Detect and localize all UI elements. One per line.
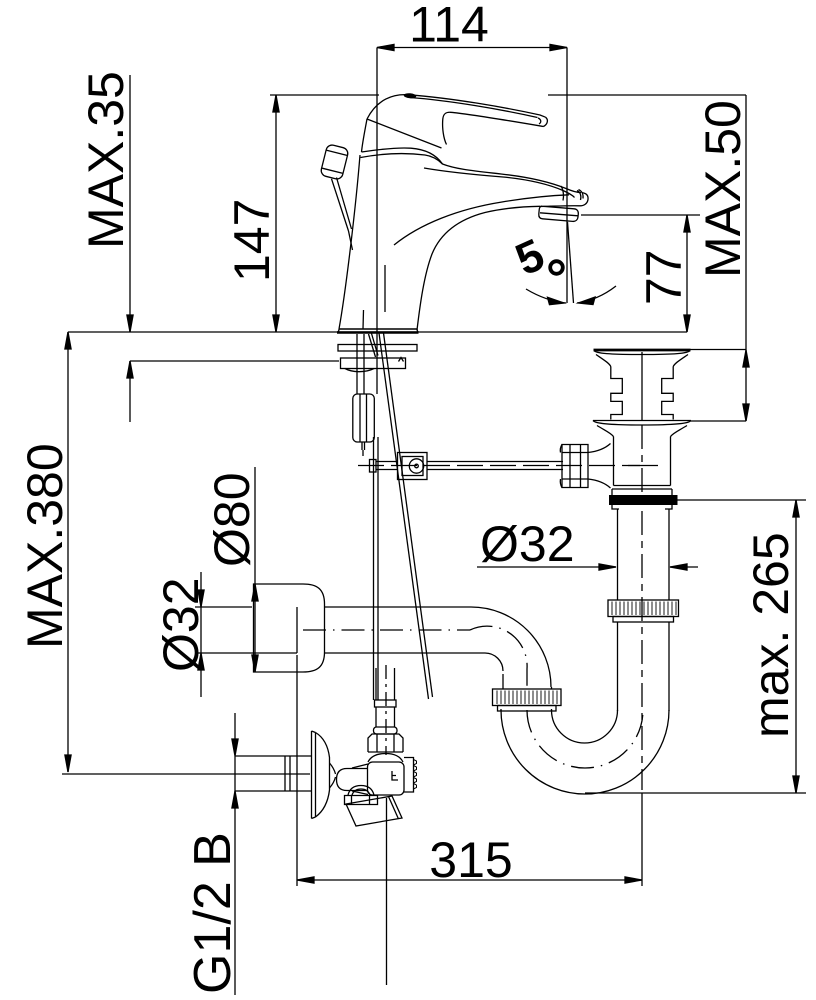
svg-text:114: 114 xyxy=(409,0,489,53)
svg-text:147: 147 xyxy=(224,199,280,282)
svg-text:max. 265: max. 265 xyxy=(743,532,799,738)
svg-text:MAX.50: MAX.50 xyxy=(695,100,751,278)
svg-text:MAX.380: MAX.380 xyxy=(17,443,73,649)
svg-text:Ø32: Ø32 xyxy=(480,516,575,572)
svg-text:MAX.35: MAX.35 xyxy=(78,71,134,249)
svg-text:Ø80: Ø80 xyxy=(204,472,260,567)
svg-text:G1/2 B: G1/2 B xyxy=(184,832,242,994)
svg-text:77: 77 xyxy=(636,249,692,305)
svg-text:Ø32: Ø32 xyxy=(153,577,209,672)
svg-text:315: 315 xyxy=(429,832,512,888)
